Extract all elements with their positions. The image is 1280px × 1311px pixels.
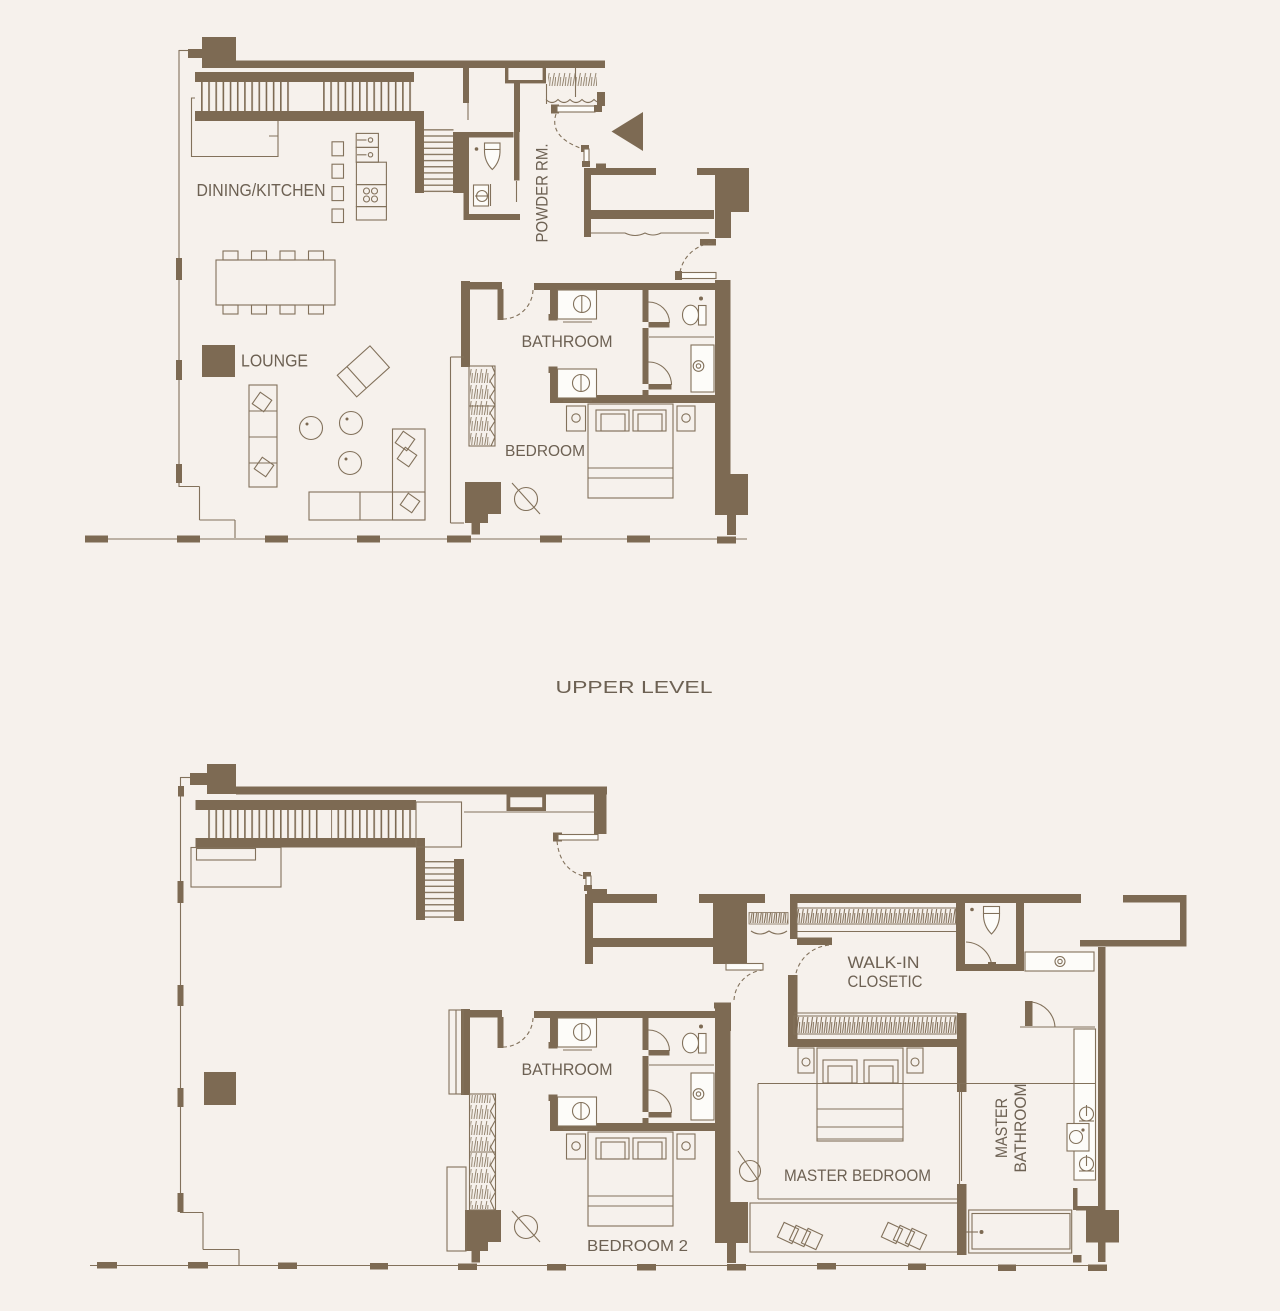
svg-text:WALK-IN: WALK-IN bbox=[848, 953, 920, 972]
svg-text:LOUNGE: LOUNGE bbox=[241, 351, 308, 371]
svg-text:CLOSETIC: CLOSETIC bbox=[848, 972, 923, 991]
svg-text:BATHROOM: BATHROOM bbox=[1012, 1084, 1030, 1173]
svg-text:BEDROOM: BEDROOM bbox=[505, 443, 585, 460]
svg-text:UPPER LEVEL: UPPER LEVEL bbox=[556, 677, 713, 697]
svg-text:DINING/KITCHEN: DINING/KITCHEN bbox=[197, 180, 326, 200]
svg-text:MASTER: MASTER bbox=[993, 1098, 1011, 1158]
svg-text:POWDER RM.: POWDER RM. bbox=[533, 144, 552, 243]
svg-text:MASTER BEDROOM: MASTER BEDROOM bbox=[784, 1166, 931, 1185]
svg-text:BEDROOM 2: BEDROOM 2 bbox=[587, 1238, 688, 1255]
